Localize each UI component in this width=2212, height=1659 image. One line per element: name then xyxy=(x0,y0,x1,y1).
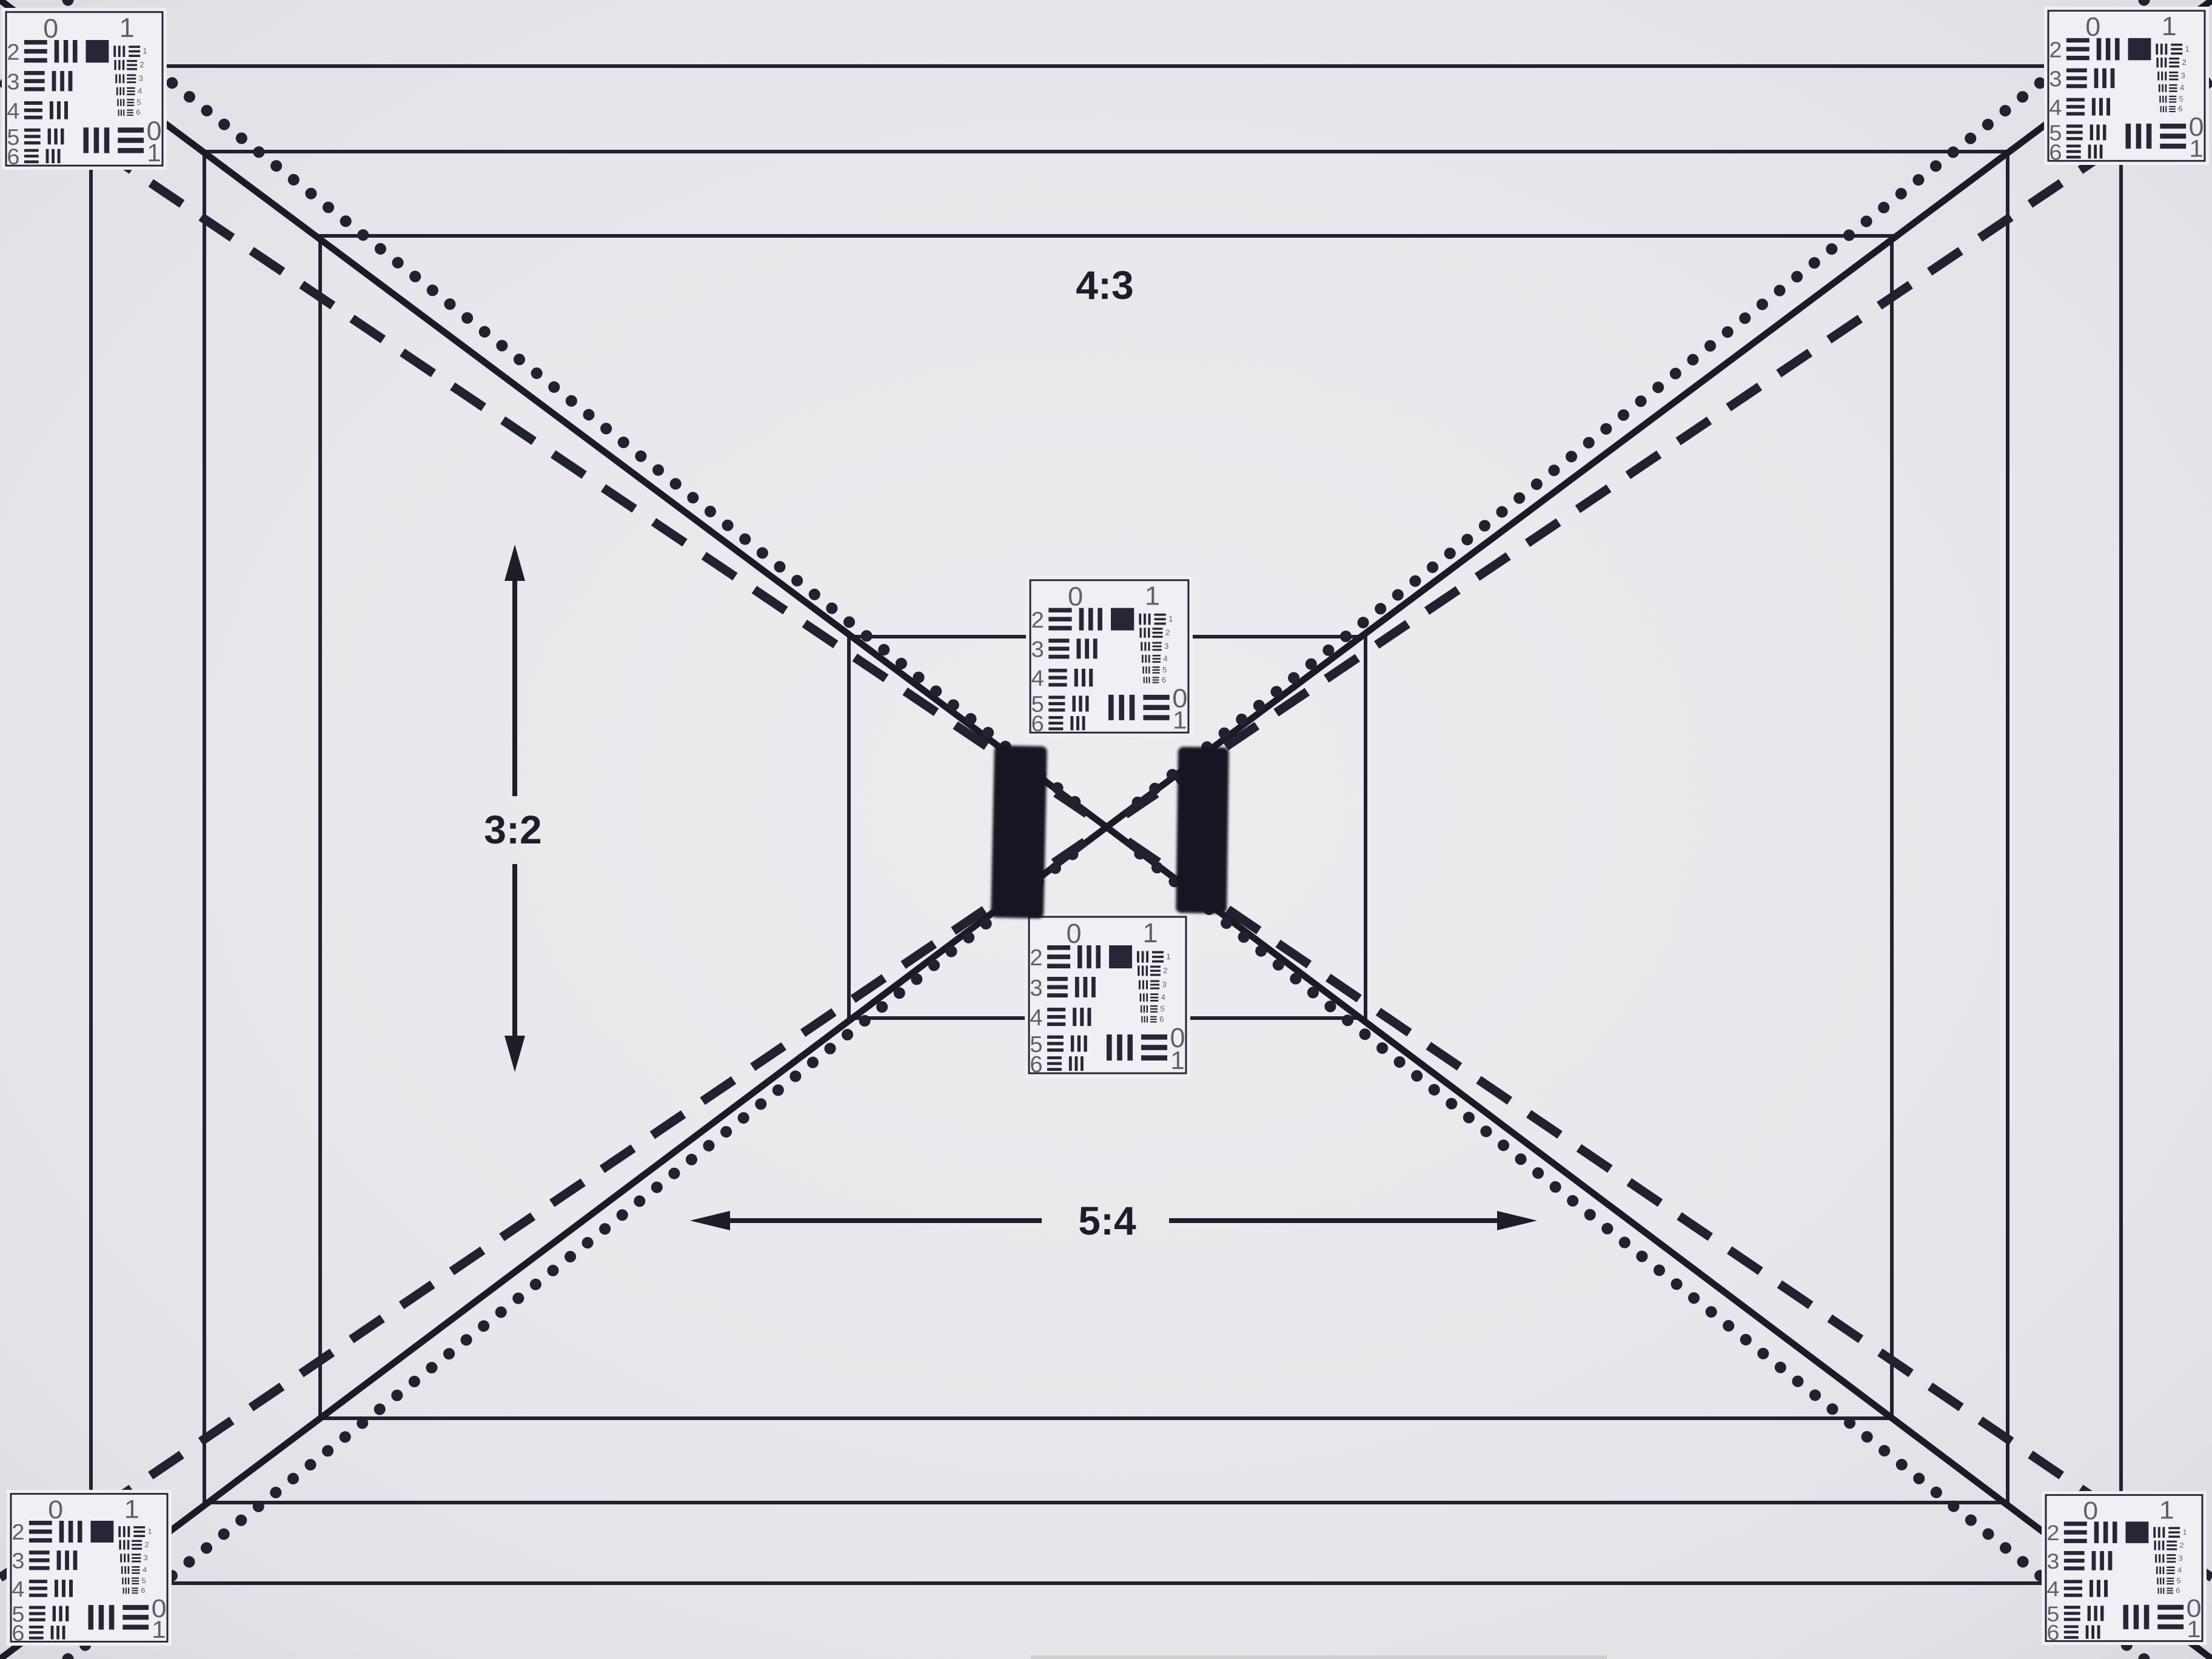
svg-text:3:2: 3:2 xyxy=(484,807,541,852)
svg-text:5:4: 5:4 xyxy=(1078,1198,1136,1243)
svg-text:4:3: 4:3 xyxy=(1076,263,1133,307)
